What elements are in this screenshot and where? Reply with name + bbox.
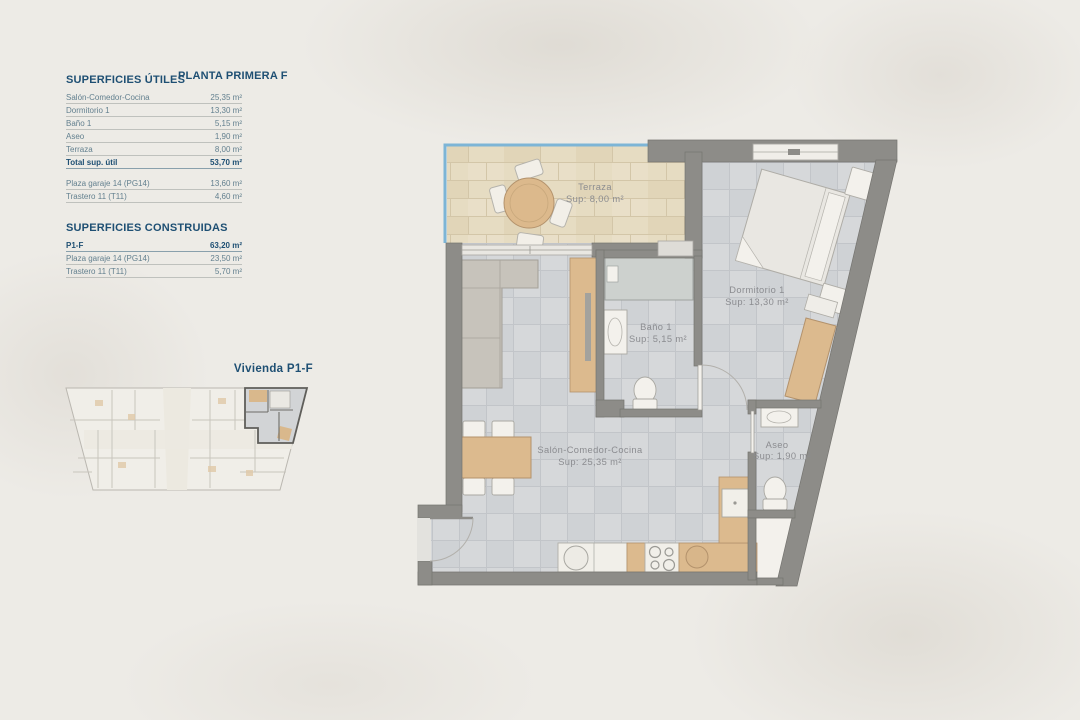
miniplan-label: Vivienda P1-F — [234, 363, 313, 375]
entrance-opening — [417, 518, 431, 561]
salon-sup: Sup: 25,35 m² — [558, 457, 622, 467]
kitchen-sink-basin — [564, 546, 588, 570]
wall-bottom — [418, 572, 757, 585]
terraza-label: Terraza — [578, 182, 612, 192]
shower-fixture — [607, 266, 618, 282]
terrace-round-table — [504, 178, 554, 228]
wall-aseo-top — [748, 400, 821, 408]
bano-sup: Sup: 5,15 m² — [629, 334, 687, 344]
aseo-toilet-tank — [763, 499, 787, 510]
wall-bottom-thin — [757, 578, 783, 585]
wall-left-step — [418, 505, 462, 518]
main-floor-plan: Terraza Sup: 8,00 m² Dormitorio 1 Sup: 1… — [417, 140, 897, 586]
bedroom-window-tick — [788, 149, 800, 155]
aseo-door-leaf — [751, 411, 754, 453]
unit-room-mini — [270, 391, 290, 408]
aseo-sup: Sup: 1,90 m² — [753, 451, 811, 461]
dormitorio-sup: Sup: 13,30 m² — [725, 297, 789, 307]
dining-table — [452, 437, 531, 478]
wall-left-corner — [418, 561, 432, 585]
bath-high-window — [658, 241, 693, 256]
toilet-tank — [633, 399, 657, 410]
appliance-knob — [733, 501, 736, 504]
wall-bath-right — [694, 256, 702, 366]
tv — [585, 293, 591, 361]
wall-storage-left — [748, 518, 756, 580]
bath-sink — [604, 310, 627, 354]
round-sink — [686, 546, 708, 568]
dining-chair — [463, 421, 485, 438]
plan-canvas: Vivienda P1-F — [0, 0, 1080, 720]
wall-aseo-left-lower — [748, 452, 756, 518]
bath-door-leaf — [698, 365, 702, 410]
dining-chair — [492, 478, 514, 495]
salon-label: Salón-Comedor-Cocina — [537, 445, 643, 455]
dining-chair — [492, 421, 514, 438]
terraza-sup: Sup: 8,00 m² — [566, 194, 624, 204]
wall-aseo-bottom — [748, 510, 795, 518]
wall-bath-left — [596, 250, 604, 417]
aseo-label: Aseo — [766, 440, 789, 450]
tv-cabinet — [570, 258, 597, 392]
dining-chair — [463, 478, 485, 495]
counter-wood — [627, 543, 645, 572]
unit-terrace-mini — [249, 390, 267, 402]
wall-left-upper — [446, 243, 462, 512]
wall-bath-bottom — [620, 409, 702, 417]
aseo-sink — [761, 407, 798, 427]
bano-label: Baño 1 — [640, 322, 672, 332]
dormitorio-label: Dormitorio 1 — [729, 285, 784, 295]
page-background: SUPERFICIES ÚTILES PLANTA PRIMERA F Saló… — [0, 0, 1080, 720]
mini-plan: Vivienda P1-F — [66, 363, 313, 490]
